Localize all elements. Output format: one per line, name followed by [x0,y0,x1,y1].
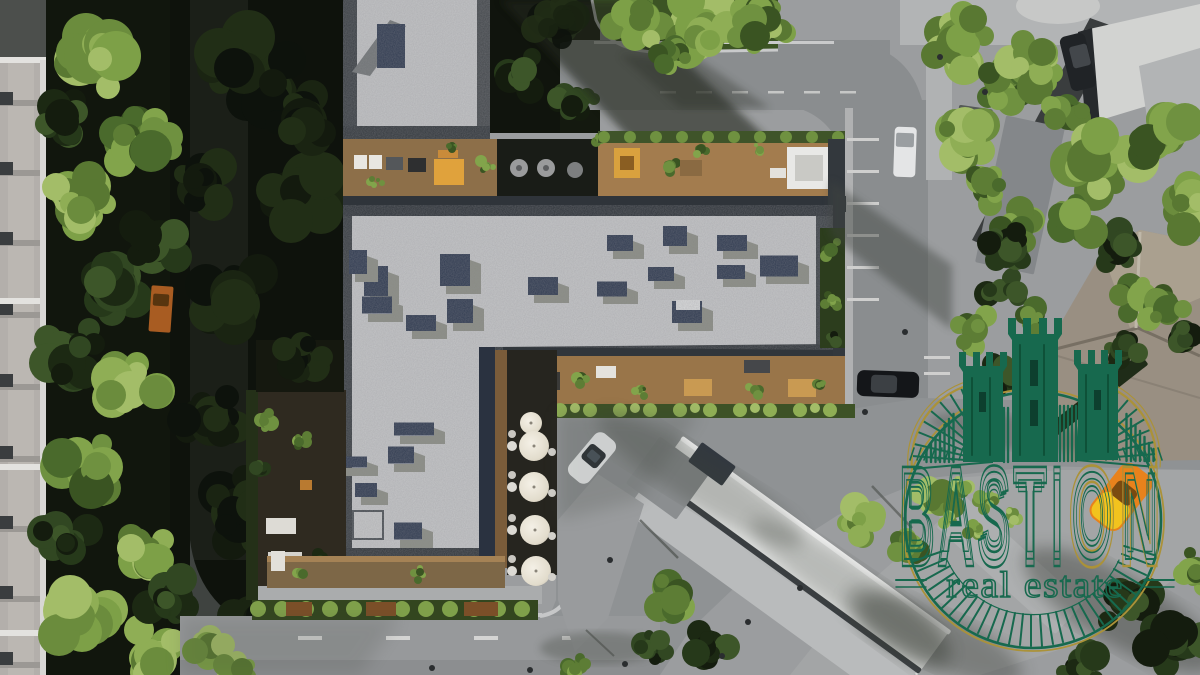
svg-text:N: N [1125,459,1155,575]
svg-text:A: A [943,459,970,575]
svg-text:S: S [982,459,1006,575]
svg-text:real estate: real estate [946,565,1123,605]
svg-text:B: B [904,459,930,575]
svg-text:T: T [1018,459,1042,575]
svg-text:O: O [1075,459,1110,575]
svg-text:I: I [1053,459,1062,575]
